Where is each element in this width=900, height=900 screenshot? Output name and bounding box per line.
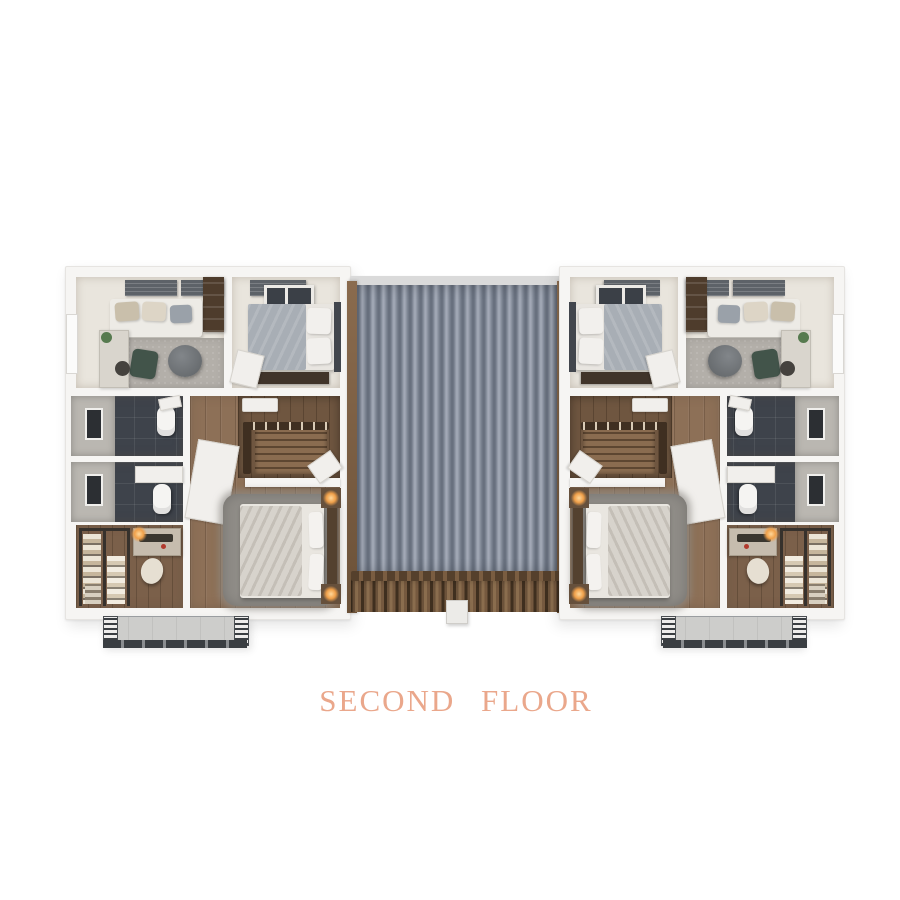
bathroom-window [807,408,825,440]
bed-headboard [334,302,341,372]
closet-rail [804,528,807,606]
window-blind [733,280,785,296]
bathroom-window [85,408,103,440]
lamp-glow [323,490,339,506]
vanity-sink [727,466,775,483]
bean-bag-chair [708,345,742,377]
closet-rail [780,528,783,606]
lamp-glow [323,586,339,602]
throw-pillow [744,301,769,321]
bed-headboard [569,302,576,372]
bathroom-window [807,474,825,506]
stair-railing [659,422,667,474]
vanity-sink [135,466,183,483]
toilet [153,484,171,514]
stair-railing [243,422,251,474]
throw-pillow [718,305,741,324]
bed-pillow [306,337,331,364]
toilet [739,484,757,514]
throw-pillow [114,301,139,322]
page-title: SECOND FLOOR [6,683,900,719]
storage-bench [581,372,657,384]
wardrobe-shelf [686,277,707,332]
hanging-clothes [785,556,803,604]
wardrobe-shelf [203,277,224,332]
desk-plant [101,332,112,343]
bean-bag-chair [168,345,202,377]
storage-bench [253,372,329,384]
ac-unit [632,398,668,412]
closet-rail [828,528,831,606]
toilet [735,406,753,436]
throw-pillow [770,301,795,322]
lamp-glow [131,526,147,542]
red-accent-item [161,544,166,549]
lamp-glow [571,586,587,602]
bed-pillow [308,512,323,548]
balcony-edge [663,640,807,648]
stair-railing [243,422,329,430]
hanging-clothes [107,556,125,604]
closet-rail [127,528,130,606]
red-accent-item [744,544,749,549]
accent-chair [129,348,159,380]
desk-plant [798,332,809,343]
accent-chair [751,348,781,380]
closet-rail [79,528,82,606]
throw-pillow [142,301,167,321]
floorplan-unit-left [65,266,349,650]
balcony-edge [103,640,247,648]
bed-pillow [307,308,332,335]
desk-chair [115,361,130,376]
bathroom-window [85,474,103,506]
shoe-shelf [85,584,101,604]
window-blind [125,280,177,296]
bed-pillow [578,337,603,364]
floorplan-canvas: SECOND FLOOR [0,0,900,900]
stair-railing [581,422,667,430]
roof-beam-left [347,281,357,613]
roof-vent-tab [446,600,468,624]
lamp-glow [571,490,587,506]
floorplan-unit-right [561,266,845,650]
bed-duvet [240,506,302,596]
roof-slat-rail [351,571,563,581]
desk-chair [780,361,795,376]
shoe-shelf [809,584,825,604]
throw-pillow [170,305,193,324]
roof-metal-sheet [357,285,557,573]
bed-pillow [586,512,601,548]
closet-rail [103,528,106,606]
side-window [66,314,78,374]
side-window [832,314,844,374]
lamp-glow [763,526,779,542]
bed-pillow [579,308,604,335]
center-roof [347,276,567,622]
ac-unit [242,398,278,412]
bed-duvet [608,506,670,596]
